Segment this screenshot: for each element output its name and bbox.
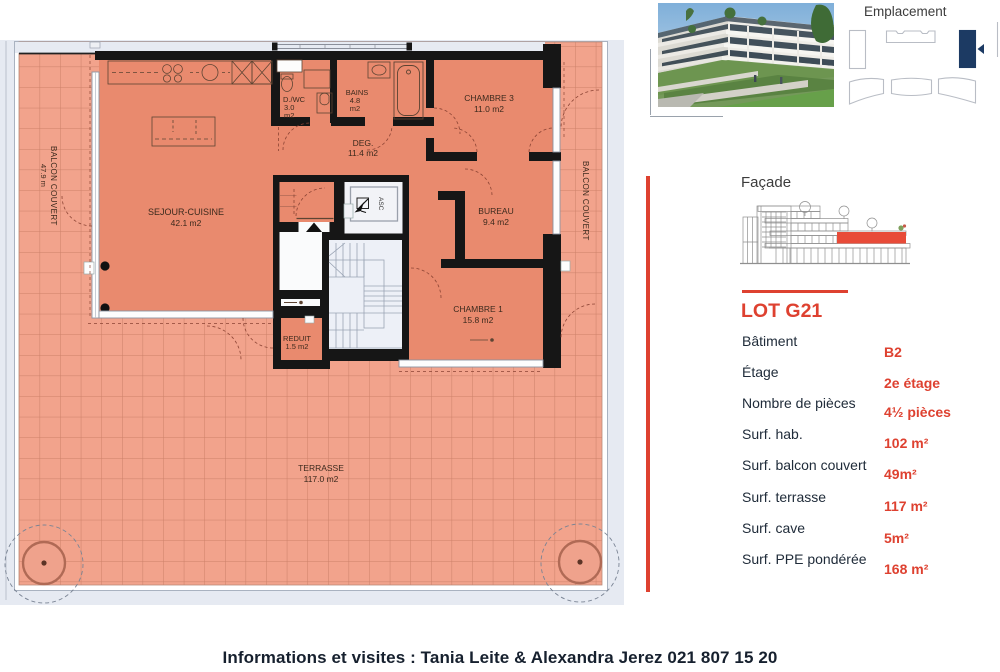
svg-text:m2: m2 (350, 104, 360, 113)
svg-text:9.4 m2: 9.4 m2 (483, 217, 509, 227)
svg-text:11.4 m2: 11.4 m2 (348, 148, 378, 158)
svg-text:117.0 m2: 117.0 m2 (304, 474, 339, 484)
svg-text:m2: m2 (284, 111, 294, 120)
svg-text:47.9 m: 47.9 m (39, 164, 48, 187)
svg-text:BUREAU: BUREAU (478, 206, 513, 216)
svg-text:TERRASSE: TERRASSE (298, 463, 344, 473)
svg-text:CHAMBRE 3: CHAMBRE 3 (464, 93, 514, 103)
svg-text:15.8 m2: 15.8 m2 (463, 315, 494, 325)
svg-text:CHAMBRE 1: CHAMBRE 1 (453, 304, 503, 314)
svg-text:DEG.: DEG. (353, 138, 374, 148)
svg-text:1.5 m2: 1.5 m2 (286, 342, 309, 351)
svg-text:SEJOUR-CUISINE: SEJOUR-CUISINE (148, 207, 224, 217)
svg-text:BALCON COUVERT: BALCON COUVERT (581, 161, 590, 241)
svg-text:BALCON COUVERT: BALCON COUVERT (49, 146, 58, 226)
svg-text:42.1 m2: 42.1 m2 (171, 218, 202, 228)
svg-text:ASC: ASC (377, 197, 384, 211)
svg-text:11.0 m2: 11.0 m2 (474, 104, 504, 114)
